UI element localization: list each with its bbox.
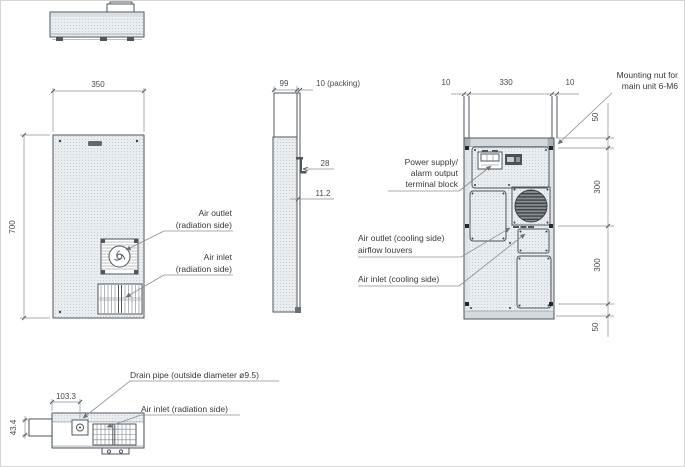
rear-top-flange	[465, 139, 554, 147]
label-mounting-nut: Mounting nut for main unit 6-M6	[558, 70, 678, 144]
svg-text:103.3: 103.3	[56, 392, 77, 401]
side-upper-section	[274, 93, 297, 137]
outline-drawing-sheet: 350 700 Air outlet (radiation side) Air …	[0, 0, 685, 467]
bottom-inlet-louver	[93, 424, 136, 445]
svg-text:50: 50	[591, 112, 600, 121]
svg-text:300: 300	[593, 180, 602, 194]
svg-text:10: 10	[566, 78, 575, 87]
rear-view: 10 330 10 50 300 300 50 Mounting nut for…	[358, 70, 678, 337]
svg-text:10 (packing): 10 (packing)	[316, 79, 360, 88]
rear-mounting-rails	[464, 96, 557, 138]
svg-text:43.4: 43.4	[9, 419, 18, 435]
top-view-feet	[56, 37, 134, 41]
brand-logo	[88, 141, 102, 146]
svg-text:main unit 6-M6: main unit 6-M6	[622, 81, 678, 91]
svg-text:300: 300	[593, 258, 602, 272]
top-view-terminal-cover	[107, 4, 134, 12]
top-view	[50, 2, 144, 41]
svg-text:700: 700	[8, 220, 17, 234]
front-inlet-louver	[98, 284, 142, 314]
svg-text:99: 99	[280, 79, 289, 88]
drain-pipe	[72, 420, 88, 435]
front-fan-grille	[101, 239, 138, 274]
svg-text:alarm output: alarm output	[411, 168, 459, 178]
svg-text:Air inlet (cooling side): Air inlet (cooling side)	[358, 274, 439, 284]
dim-side-bracket: 28	[303, 159, 334, 171]
terminal-block	[478, 150, 502, 169]
rating-plate	[505, 154, 522, 165]
svg-text:Mounting nut for: Mounting nut for	[617, 70, 679, 80]
svg-text:terminal block: terminal block	[406, 179, 459, 189]
rear-bottom-flange	[465, 311, 554, 319]
dim-side-depth: 99 10 (packing)	[272, 79, 360, 92]
dim-bottom-y: 43.4	[9, 416, 30, 439]
side-body	[273, 137, 297, 312]
svg-text:11.2: 11.2	[316, 189, 332, 198]
bottom-view: 103.3 43.4 Drain pipe (outside diameter …	[9, 370, 279, 454]
side-foot	[295, 307, 301, 313]
svg-text:Air outlet (cooling side): Air outlet (cooling side)	[358, 233, 445, 243]
dim-rear-top: 10 330 10	[442, 78, 579, 96]
svg-text:330: 330	[499, 78, 513, 87]
svg-text:airflow louvers: airflow louvers	[358, 245, 412, 255]
svg-text:Air outlet: Air outlet	[198, 208, 232, 218]
front-view: 350 700 Air outlet (radiation side) Air …	[8, 80, 233, 320]
svg-text:Air inlet: Air inlet	[204, 252, 233, 262]
bottom-foot-bracket	[102, 448, 129, 454]
top-view-back-band	[51, 13, 143, 17]
side-view: 99 10 (packing) 28 11.2	[272, 79, 360, 313]
dim-front-width: 350	[51, 80, 146, 132]
svg-text:(radiation side): (radiation side)	[176, 220, 232, 230]
rear-outlet-louvers	[513, 226, 534, 228]
technical-drawing: 350 700 Air outlet (radiation side) Air …	[1, 1, 685, 467]
bottom-slide-bracket	[29, 419, 52, 436]
svg-text:28: 28	[321, 159, 330, 168]
svg-text:Power supply/: Power supply/	[405, 157, 459, 167]
svg-text:(radiation side): (radiation side)	[176, 264, 232, 274]
dim-front-height: 700	[8, 133, 50, 320]
svg-text:Air inlet (radiation side): Air inlet (radiation side)	[141, 404, 228, 414]
svg-text:350: 350	[91, 80, 105, 89]
svg-text:50: 50	[591, 322, 600, 331]
svg-text:Drain pipe (outside diameter ø: Drain pipe (outside diameter ø9.5)	[130, 370, 259, 380]
svg-text:10: 10	[442, 78, 451, 87]
